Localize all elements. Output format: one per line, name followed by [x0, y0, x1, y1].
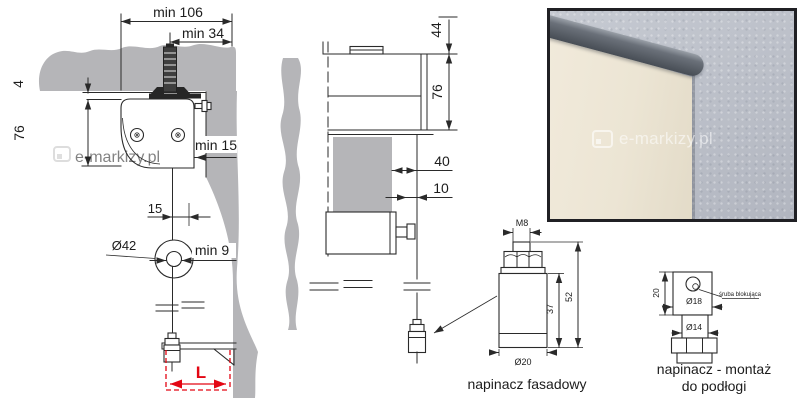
dim-20-label: 20: [651, 288, 661, 298]
hex-nut: [672, 338, 718, 353]
dim-dia20: Ø20: [490, 349, 556, 367]
break-symbol: [310, 281, 430, 291]
watermark-text: e-markizy.pl: [619, 129, 713, 149]
dim-min15-label: min 15: [195, 137, 237, 153]
dim-dia20-label: Ø20: [514, 357, 531, 367]
dim-76-side: 76: [427, 54, 457, 130]
detail-leader-arrow: [434, 296, 497, 333]
dim-44-label: 44: [428, 22, 444, 38]
product-photo: e-markizy.pl: [547, 8, 797, 222]
floor-tensioner-label-2: do podłogi: [682, 378, 747, 394]
dim-dia42: Ø42: [106, 238, 156, 259]
tensioner-body: [499, 274, 547, 348]
dim-10: 10: [386, 180, 452, 198]
hex-nut: [504, 252, 542, 268]
screenshot-canvas: min 106 min 34 4 76 min 15 15: [0, 0, 800, 400]
locking-screw-note: śruba blokująca: [719, 292, 762, 298]
side-view: 44 76 40 10: [281, 17, 497, 363]
dim-min106-label: min 106: [153, 4, 203, 20]
cable-guide-pulley: [155, 240, 193, 278]
dim-76-side-label: 76: [429, 84, 445, 100]
watermark-icon: [592, 130, 613, 148]
stud: [513, 242, 530, 252]
dim-min9-label: min 9: [195, 242, 229, 258]
cassette-side: [323, 42, 437, 135]
ceiling-section: [39, 44, 236, 91]
dim-m8: M8: [505, 218, 541, 242]
dim-dia18-label: Ø18: [686, 296, 702, 306]
dim-m8-label: M8: [516, 218, 529, 228]
facade-tensioner-label: napinacz fasadowy: [467, 376, 586, 392]
side-bolt: [195, 101, 211, 112]
dim-40-label: 40: [434, 153, 450, 169]
watermark-text: e-markizy.pl: [75, 149, 160, 166]
dim-76-label: 76: [11, 125, 27, 141]
roller-box: [326, 212, 415, 254]
threaded-rod: [164, 44, 177, 93]
photo-watermark: e-markizy.pl: [592, 129, 713, 149]
tensioner-side: [409, 320, 426, 364]
wall-block: [333, 137, 392, 212]
washer: [501, 268, 545, 274]
floor-tensioner-detail: śruba blokująca Ø18 20 Ø14 napinacz - mo…: [651, 272, 771, 394]
drawing-watermark: e-markizy.pl: [54, 147, 160, 166]
dim-10-label: 10: [433, 180, 449, 196]
dim-dia14-label: Ø14: [686, 322, 702, 332]
dim-dia42-label: Ø42: [112, 238, 137, 253]
facade-tensioner-detail: M8 37 52 Ø20 napinacz fasadowy: [467, 218, 586, 392]
dim-L-label: L: [196, 363, 206, 382]
dim-4-label: 4: [10, 80, 26, 88]
break-symbol: [156, 302, 204, 311]
dim-min34: min 34: [170, 25, 232, 44]
dim-52-label: 52: [564, 292, 574, 302]
dim-44: 44: [428, 17, 457, 53]
dim-min34-label: min 34: [182, 25, 224, 41]
locking-screw-icon: [686, 277, 700, 291]
dim-37-label: 37: [545, 304, 555, 314]
dim-40: 40: [392, 153, 452, 171]
dim-15-label: 15: [148, 201, 162, 216]
floor-tensioner-label-1: napinacz - montaż: [657, 361, 771, 377]
dim-dia14: Ø14: [672, 322, 718, 333]
dim-dia18: Ø18: [663, 296, 722, 307]
torn-wall-edge: [281, 58, 301, 330]
front-view: min 106 min 34 4 76 min 15 15: [10, 4, 258, 398]
dim-15: 15: [148, 201, 210, 226]
dim-37: 37: [545, 274, 564, 348]
